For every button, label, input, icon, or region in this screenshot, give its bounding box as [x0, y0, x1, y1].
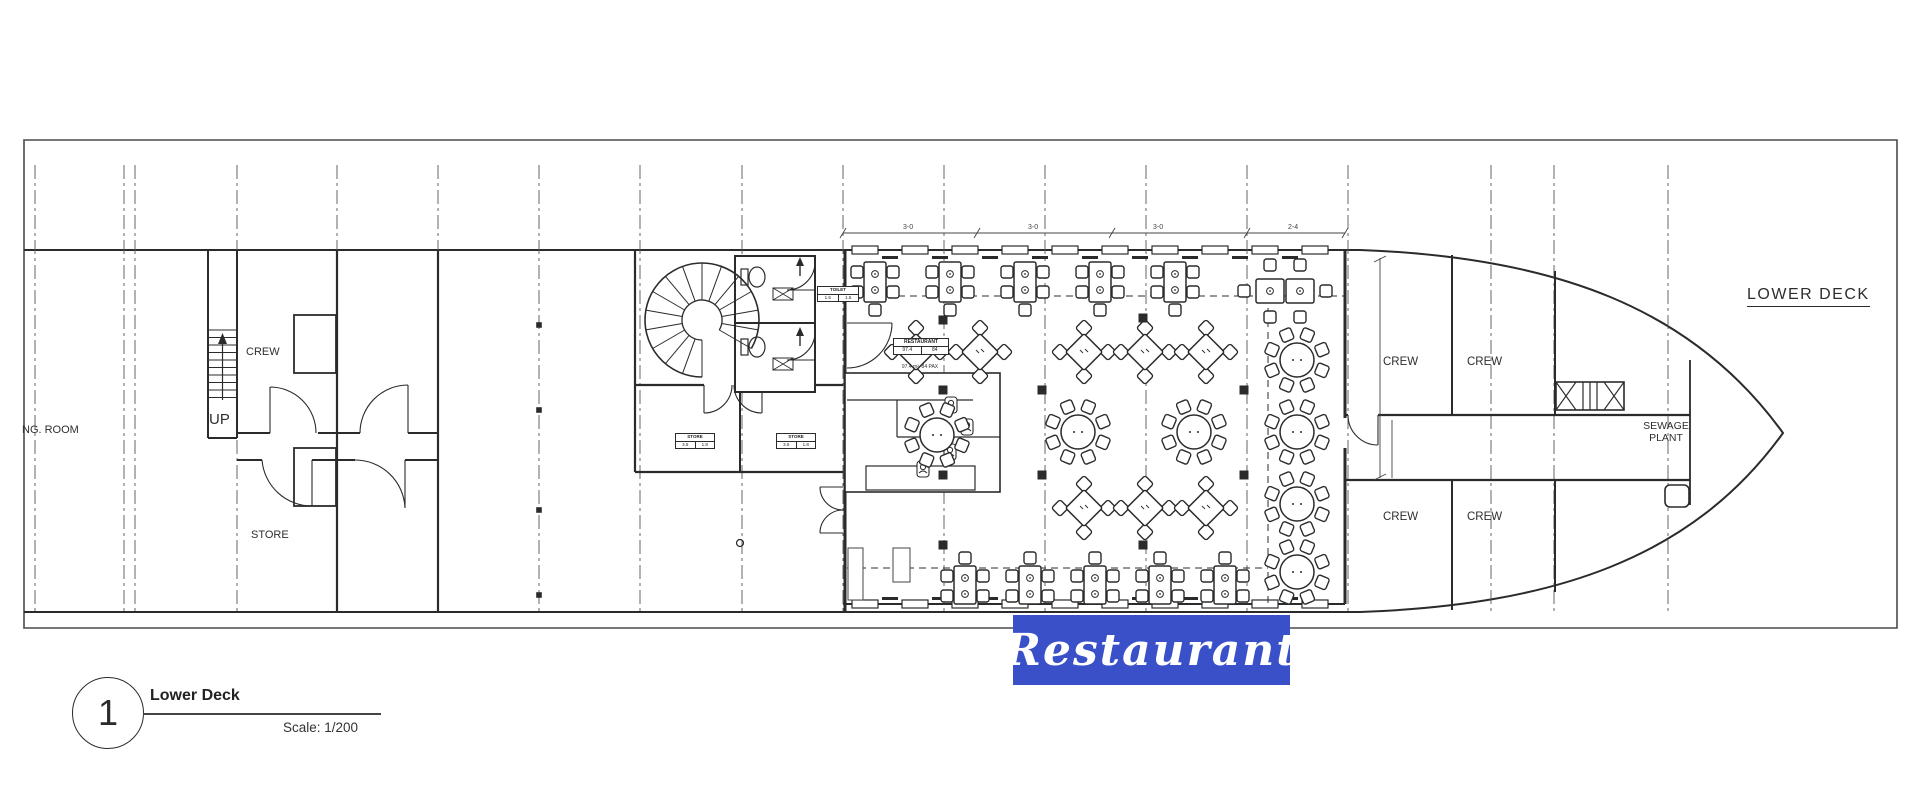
sheet-scale: Scale: 1/200	[283, 720, 358, 735]
sewage-line1: SEWAGE	[1643, 420, 1689, 432]
dim-label-1: 3-0	[903, 224, 913, 231]
store-b-tag-name: STORE	[777, 434, 815, 442]
deck-title: LOWER DECK	[1747, 286, 1870, 307]
sheet-name: Lower Deck	[150, 687, 240, 705]
room-tag-store-a: STORE 3.51.8	[675, 433, 715, 449]
room-tag-wc: TOILET 1.51.5	[817, 286, 859, 302]
title-underline	[143, 713, 381, 715]
restaurant-tag-area: 97.4	[894, 347, 921, 354]
restaurant-tag-name: RESTAURANT	[894, 339, 948, 347]
room-tag-store-b: STORE 3.51.8	[776, 433, 816, 449]
room-label-crew-2: CREW	[1467, 356, 1502, 368]
room-label-ng-room: NG. ROOM	[22, 424, 79, 436]
restaurant-banner-text: Restaurant	[1004, 625, 1298, 676]
restaurant-tag-subtext: 97.4 m² 84 PAX	[891, 364, 949, 370]
dim-label-4: 2-4	[1288, 224, 1298, 231]
room-label-crew-stern: CREW	[246, 346, 280, 358]
wc-tag-name: TOILET	[818, 287, 858, 295]
room-label-crew-4: CREW	[1467, 511, 1502, 523]
room-label-sewage-plant: SEWAGEPLANT	[1628, 420, 1704, 444]
store-a-cell1: 3.5	[676, 442, 695, 449]
restaurant-tag-pax: 84	[921, 347, 949, 354]
store-b-cell1: 3.5	[777, 442, 796, 449]
room-label-up: UP	[209, 411, 230, 428]
room-label-store: STORE	[251, 529, 289, 541]
store-a-tag-name: STORE	[676, 434, 714, 442]
room-label-crew-1: CREW	[1383, 356, 1418, 368]
floor-plan-page: NG. ROOM CREW UP STORE CREW CREW CREW CR…	[0, 0, 1920, 800]
wc-cell1: 1.5	[818, 295, 838, 302]
restaurant-banner: Restaurant	[1013, 615, 1290, 685]
dim-label-2: 3-0	[1028, 224, 1038, 231]
wc-cell2: 1.5	[838, 295, 859, 302]
store-b-cell2: 1.8	[796, 442, 816, 449]
dim-label-3: 3-0	[1153, 224, 1163, 231]
sheet-number-bubble: 1	[72, 677, 144, 749]
furniture-layer	[0, 0, 1920, 800]
room-tag-restaurant: RESTAURANT 97.484	[893, 338, 949, 355]
store-a-cell2: 1.8	[695, 442, 715, 449]
room-label-crew-3: CREW	[1383, 511, 1418, 523]
sewage-line2: PLANT	[1649, 432, 1683, 444]
